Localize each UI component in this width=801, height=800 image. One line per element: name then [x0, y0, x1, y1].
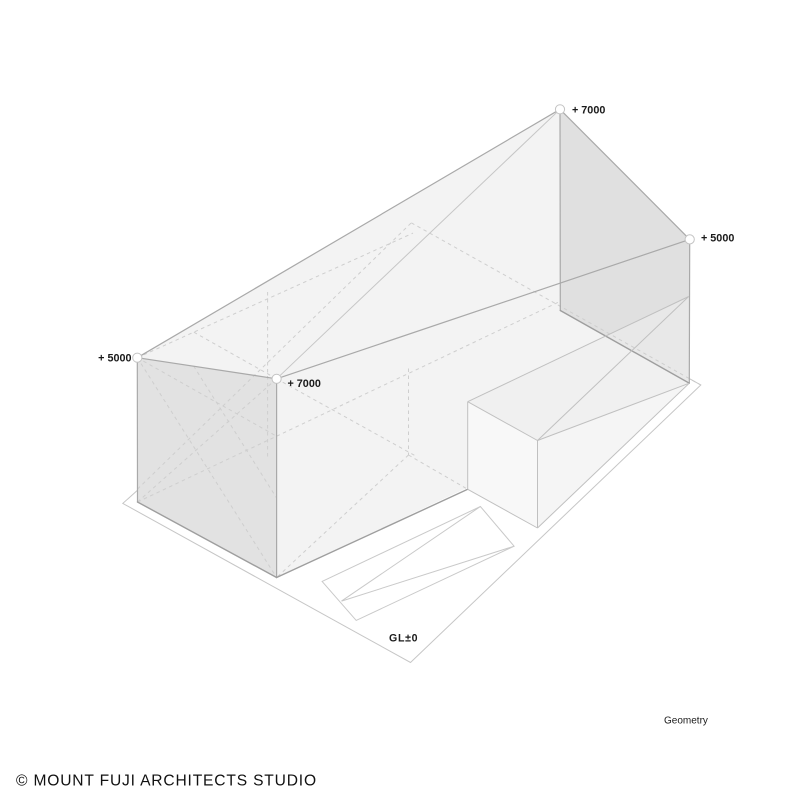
svg-text:+ 5000: + 5000: [98, 353, 131, 365]
svg-text:+ 7000: + 7000: [572, 105, 605, 117]
svg-text:GL±0: GL±0: [389, 633, 418, 645]
svg-text:Geometry: Geometry: [664, 716, 708, 727]
svg-text:© MOUNT FUJI ARCHITECTS STUDIO: © MOUNT FUJI ARCHITECTS STUDIO: [16, 772, 317, 789]
svg-text:+ 5000: + 5000: [701, 233, 734, 245]
svg-text:+ 7000: + 7000: [288, 378, 321, 390]
